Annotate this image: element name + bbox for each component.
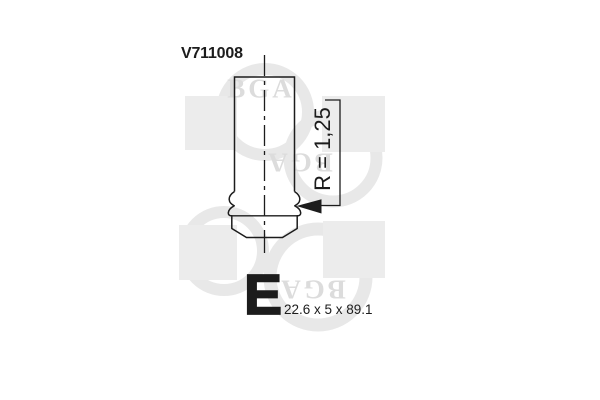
valve-type-letter: E (244, 267, 282, 324)
catalog-drawing-page: BGA BGA BGA V711008 R = 1,25 E 22.6 x 5 … (0, 0, 600, 400)
radius-label: R = 1,25 (310, 107, 336, 191)
valve-drawing (0, 0, 600, 400)
part-number-label: V711008 (181, 45, 243, 63)
valve-dimensions-label: 22.6 x 5 x 89.1 (284, 302, 373, 317)
